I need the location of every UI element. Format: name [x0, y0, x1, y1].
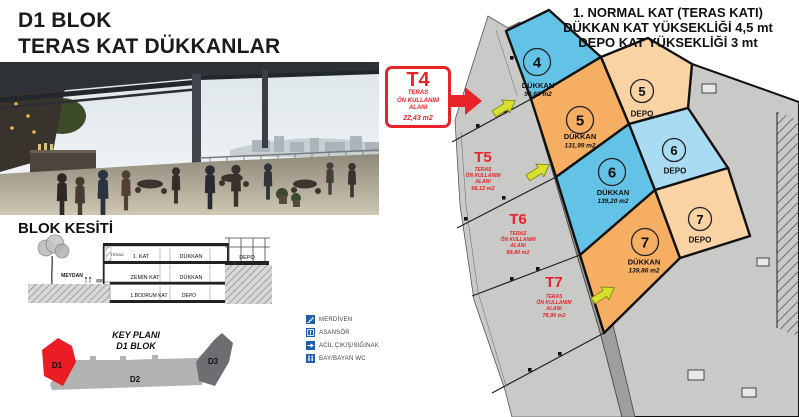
shop-type: DÜKKAN	[628, 258, 661, 267]
key-plan-drawing: KEY PLANI D1 BLOK D1 D2 D3	[28, 326, 258, 406]
legend-item-stairs: MERDİVEN	[306, 315, 379, 324]
shop-number: 6	[608, 165, 616, 182]
shop-type: DEPO	[631, 110, 654, 119]
legend-item-elevator: ASANSÖR	[306, 328, 379, 337]
terrace-area: 89,40 m2	[506, 250, 529, 256]
t4-area: 22,43 m2	[389, 115, 447, 122]
section-floor1-use: DÜKKAN	[180, 253, 203, 260]
block-section-drawing: MEYDAN TERAS 1. KAT DÜKKAN ZEMİN KAT DÜK…	[22, 234, 272, 309]
terrace-line: ALANI	[545, 306, 562, 312]
key-plan-d3-label: D3	[208, 357, 219, 366]
shop-number: 7	[641, 235, 649, 252]
terrace-code: T5	[474, 149, 492, 166]
section-ground-use: DÜKKAN	[180, 274, 203, 281]
info-line-2: DÜKKAN KAT YÜKSEKLİĞİ 4,5 mt	[539, 21, 797, 36]
brochure-page: D1 BLOK TERAS KAT DÜKKANLAR 1. NORMAL KA…	[0, 0, 799, 417]
key-plan-d1-label: D1	[52, 361, 63, 370]
title-line-2: TERAS KAT DÜKKANLAR	[18, 34, 280, 60]
shop-area: 139,86 m2	[628, 268, 659, 275]
shop-type: DÜKKAN	[564, 132, 597, 141]
shop-number: 5	[638, 84, 645, 99]
elevator-icon	[306, 328, 315, 337]
t4-line2: ÖN KULLANIM	[389, 98, 447, 106]
key-plan-title-1: KEY PLANI	[112, 330, 160, 340]
terrace-line: ALANI	[509, 243, 526, 249]
terrace-area: 78,90 m2	[542, 313, 565, 319]
section-upper-depo-label: DEPO	[239, 255, 255, 261]
legend-label: ACİL ÇIKIŞ/SIĞINAK	[319, 343, 379, 349]
shop-type: DÜKKAN	[597, 188, 630, 197]
terrace-code: T7	[545, 274, 563, 291]
legend-label: BAY/BAYAN WC	[319, 356, 366, 362]
section-teras-label: TERAS	[110, 252, 124, 257]
terrace-area: 68,12 m2	[471, 186, 494, 192]
wc-icon	[306, 354, 315, 363]
floor-info-note: 1. NORMAL KAT (TERAS KATI) DÜKKAN KAT YÜ…	[539, 6, 797, 51]
section-ground-label: ZEMİN KAT	[131, 274, 161, 281]
shop-number: 6	[670, 143, 677, 158]
terrace-line: ÖN KULLANIM	[466, 172, 502, 179]
stairs-icon	[306, 315, 315, 324]
shop-type: DEPO	[689, 236, 712, 245]
t4-code: T4	[389, 70, 447, 90]
key-plan-title-2: D1 BLOK	[116, 341, 157, 351]
section-meydan-label: MEYDAN	[61, 273, 83, 279]
legend-label: ASANSÖR	[319, 330, 350, 336]
terrace-code: T6	[509, 211, 527, 228]
title-line-1: D1 BLOK	[18, 8, 280, 34]
section-floor1-label: 1. KAT	[133, 254, 150, 260]
hatch-band	[777, 112, 799, 336]
shop-number: 7	[696, 212, 703, 227]
terrace-render-photo	[0, 62, 379, 215]
info-line-3: DEPO KAT YÜKSEKLİĞİ 3 mt	[539, 36, 797, 51]
site-plan: 4 DÜKKAN 98,63 m2 5 DÜKKAN 131,99 m2 6 D…	[430, 0, 799, 417]
section-basement-label: 1.BODRUM KAT	[130, 293, 167, 299]
shop-area: 139,20 m2	[597, 198, 628, 205]
t4-callout: T4 TERAS ÖN KULLANIM ALANI 22,43 m2	[385, 66, 451, 128]
section-basement-use: DEPO	[182, 293, 196, 299]
emergency-exit-icon	[306, 341, 315, 350]
shop-number: 4	[533, 55, 542, 72]
shop-area: 131,99 m2	[564, 143, 595, 150]
shop-type: DEPO	[664, 167, 687, 176]
terrace-line: ÖN KULLANIM	[501, 236, 537, 243]
terrace-line: ÖN KULLANIM	[537, 299, 573, 306]
shop-type: DÜKKAN	[522, 81, 555, 90]
legend-item-wc: BAY/BAYAN WC	[306, 354, 379, 363]
shop-area: 98,63 m2	[524, 91, 552, 98]
info-line-1: 1. NORMAL KAT (TERAS KATI)	[539, 6, 797, 21]
t4-line1: TERAS	[389, 90, 447, 98]
legend-item-emergency-exit: ACİL ÇIKIŞ/SIĞINAK	[306, 341, 379, 350]
page-title: D1 BLOK TERAS KAT DÜKKANLAR	[18, 8, 280, 59]
legend-label: MERDİVEN	[319, 317, 352, 323]
terrace-line: ALANI	[474, 179, 491, 185]
key-plan-d2-label: D2	[130, 375, 141, 384]
legend: MERDİVEN ASANSÖR ACİL ÇIKIŞ/SIĞINAK	[306, 315, 379, 367]
shop-number: 5	[576, 113, 584, 130]
t4-line3: ALANI	[389, 105, 447, 113]
